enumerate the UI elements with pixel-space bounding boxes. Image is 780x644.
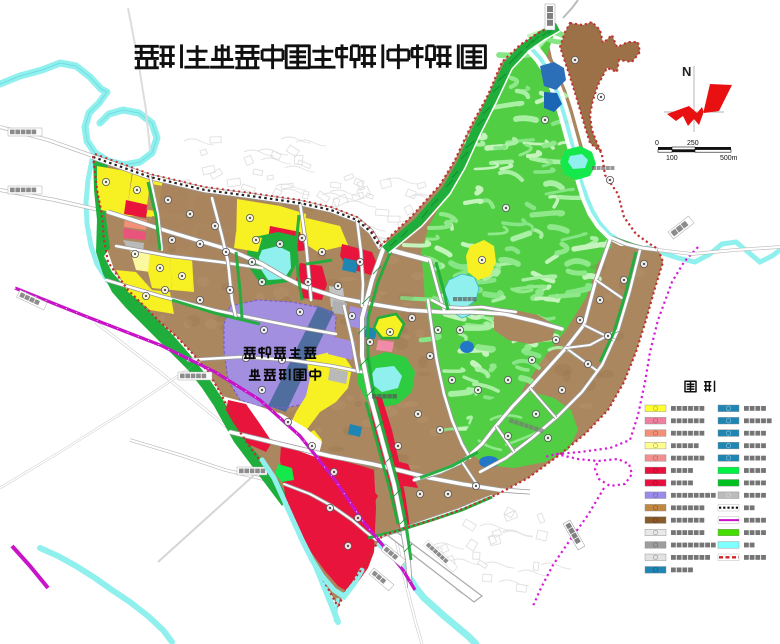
svg-text:0: 0 <box>655 140 659 147</box>
svg-text:500m: 500m <box>720 155 738 162</box>
svg-text:250: 250 <box>687 140 699 147</box>
svg-text:N: N <box>682 64 691 79</box>
svg-text:100: 100 <box>666 155 678 162</box>
